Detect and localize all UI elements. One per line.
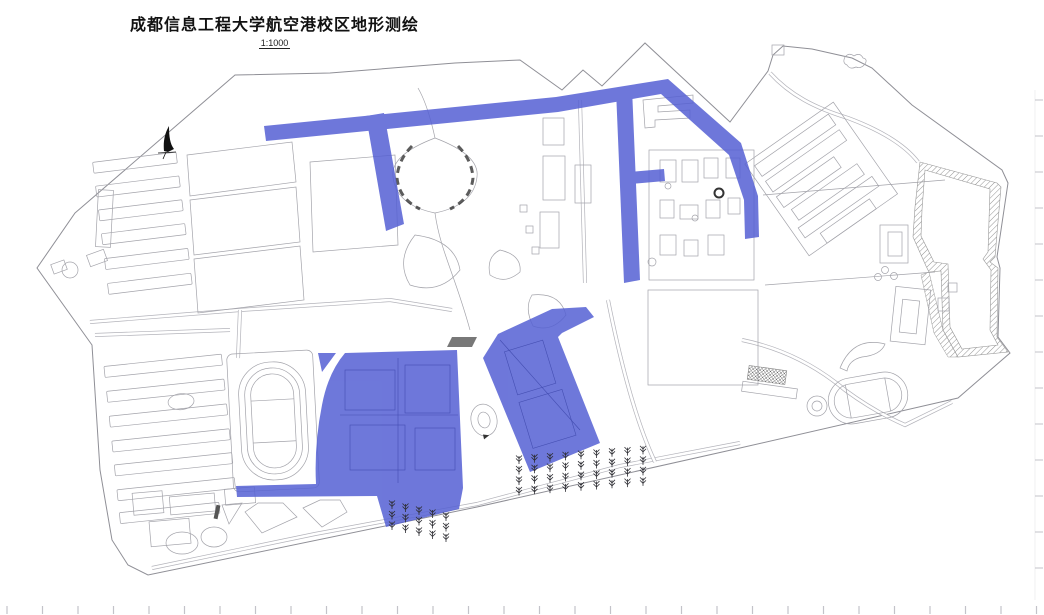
curved-building bbox=[840, 342, 885, 371]
map-scale: 1:1000 bbox=[130, 38, 419, 48]
south-central-building-block bbox=[483, 307, 600, 472]
southwest-building-block bbox=[236, 350, 463, 527]
north-perimeter-road bbox=[264, 79, 759, 239]
east-fields bbox=[763, 45, 945, 285]
northwest-dormitory-rows bbox=[93, 152, 193, 294]
central-vertical-road bbox=[616, 88, 640, 283]
campus-map-drawing bbox=[0, 0, 1044, 615]
northwest-fields bbox=[187, 142, 398, 313]
circular-planter bbox=[807, 396, 827, 416]
drawing-canvas[interactable]: 成都信息工程大学航空港校区地形测绘 1:1000 bbox=[0, 0, 1044, 615]
grandstand bbox=[747, 365, 787, 384]
title-block: 成都信息工程大学航空港校区地形测绘 1:1000 bbox=[130, 16, 419, 48]
highlighted-building-blocks bbox=[236, 307, 600, 527]
internal-roads bbox=[90, 73, 952, 568]
map-title: 成都信息工程大学航空港校区地形测绘 bbox=[130, 16, 419, 35]
traffic-circle bbox=[468, 402, 501, 442]
dark-marker-bar bbox=[214, 505, 221, 520]
far-east-building-cluster bbox=[745, 102, 898, 256]
highlighted-road-network bbox=[264, 79, 759, 283]
northeast-building-cluster bbox=[643, 95, 758, 385]
west-wedge bbox=[318, 353, 336, 372]
southwest-dormitory-rows bbox=[104, 354, 238, 523]
dark-plaza-structure bbox=[447, 337, 477, 347]
east-pond-embankment bbox=[913, 162, 1008, 357]
survey-station-marker bbox=[715, 189, 724, 198]
west-athletics-track bbox=[226, 350, 319, 492]
